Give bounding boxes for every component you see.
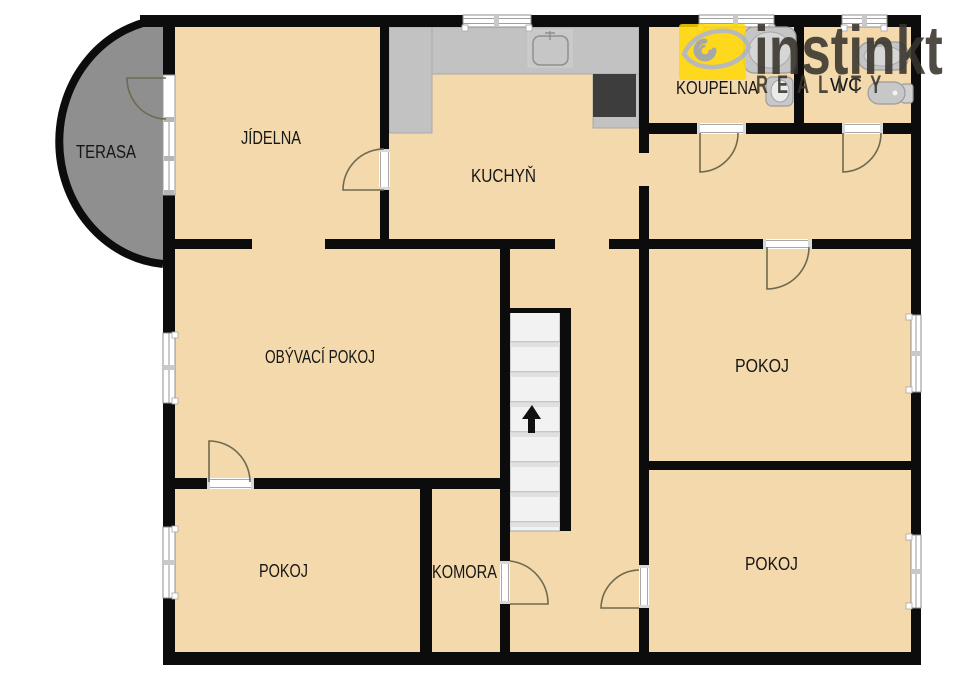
svg-text:KUCHYŇ: KUCHYŇ: [471, 166, 536, 186]
svg-text:KOMORA: KOMORA: [432, 562, 497, 582]
svg-text:OBÝVACÍ POKOJ: OBÝVACÍ POKOJ: [265, 347, 375, 367]
svg-text:POKOJ: POKOJ: [735, 356, 789, 376]
svg-text:TERASA: TERASA: [76, 142, 136, 162]
svg-text:POKOJ: POKOJ: [259, 561, 308, 581]
svg-text:POKOJ: POKOJ: [745, 554, 798, 574]
svg-text:JÍDELNA: JÍDELNA: [241, 128, 301, 148]
svg-text:REALITY: REALITY: [756, 72, 890, 99]
svg-text:KOUPELNA: KOUPELNA: [676, 78, 758, 98]
